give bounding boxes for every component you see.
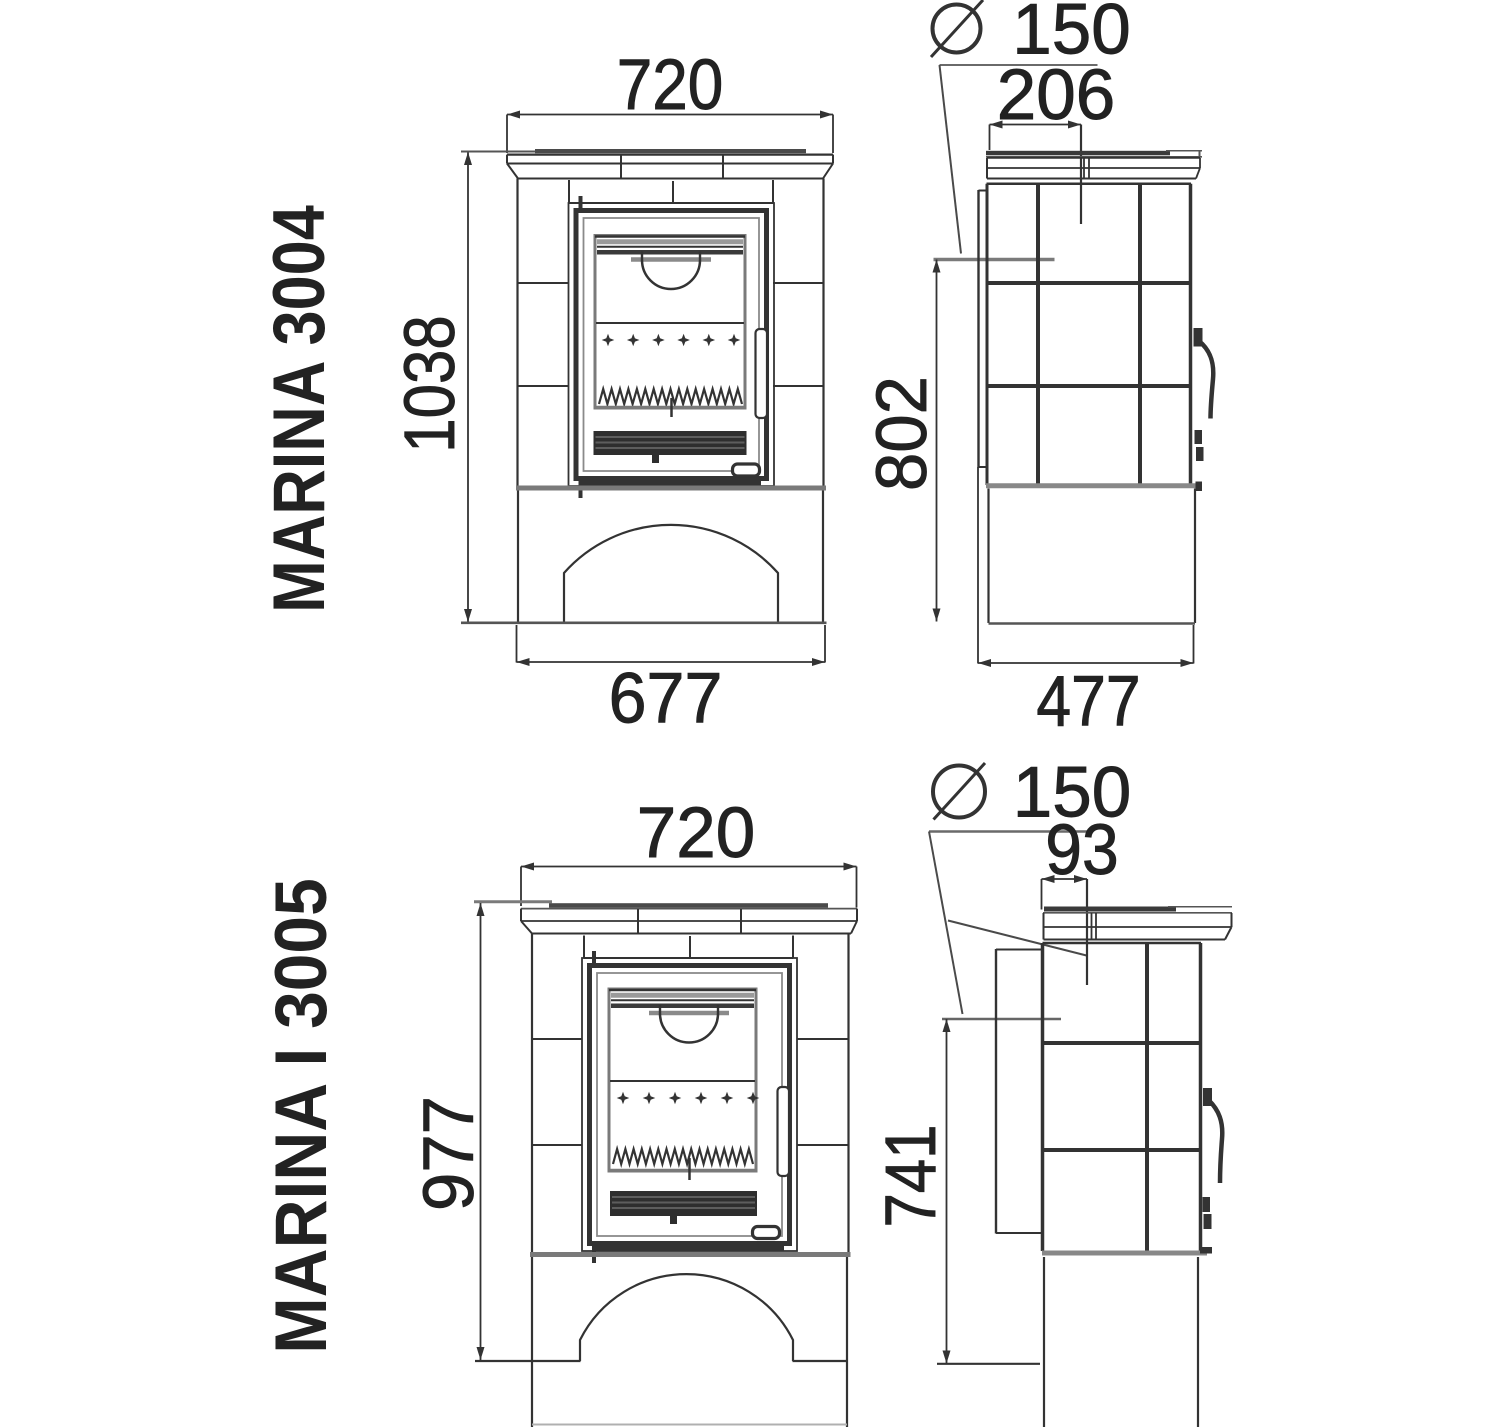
svg-text:720: 720 <box>617 46 724 125</box>
svg-text:677: 677 <box>609 658 723 738</box>
svg-text:802: 802 <box>862 376 941 491</box>
svg-text:MARINA 3004: MARINA 3004 <box>259 205 340 613</box>
svg-text:720: 720 <box>637 794 755 873</box>
svg-text:741: 741 <box>872 1124 951 1227</box>
svg-text:MARINA I 3005: MARINA I 3005 <box>260 878 342 1354</box>
svg-text:206: 206 <box>997 56 1115 135</box>
svg-text:477: 477 <box>1036 662 1140 742</box>
svg-text:977: 977 <box>409 1096 488 1211</box>
svg-text:1038: 1038 <box>391 315 470 452</box>
